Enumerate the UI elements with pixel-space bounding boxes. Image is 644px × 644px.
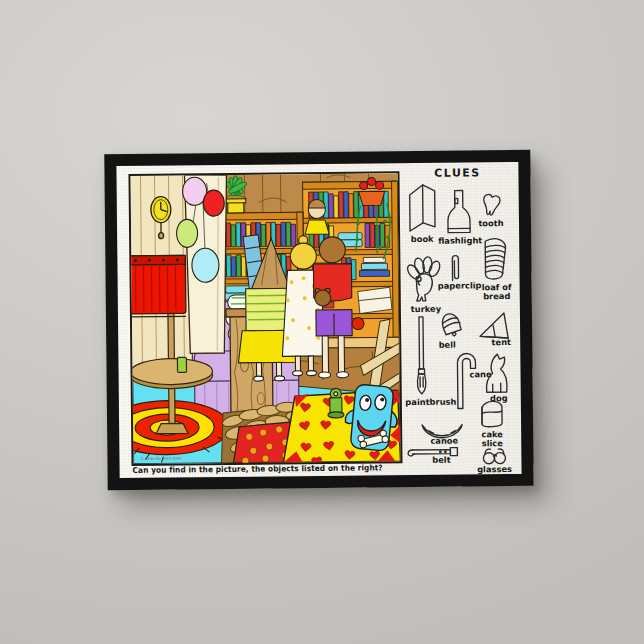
hidden-objects-scene-illustration: © Karen Bo Ward 2004 [130,173,400,464]
clue-label: tooth [476,219,506,228]
artist-copyright: © Karen Bo Ward 2004 [140,456,181,460]
cane-icon [453,348,478,410]
canvas-print: © Karen Bo Ward 2004 Can you find in the… [104,150,533,490]
turkey-icon [406,257,440,303]
puzzle-caption: Can you find in the picture, the objects… [133,463,386,475]
book-icon [406,181,439,235]
clue-label: loaf of bread [477,283,517,301]
paintbrush-icon [413,315,430,397]
dog-icon [479,350,511,394]
clues-title: CLUES [425,166,489,180]
ring-toss-toy [328,388,344,418]
flashlight-icon [446,188,472,234]
clue-label: belt [428,456,454,465]
clue-label: paintbrush [404,398,458,407]
paperclip-icon [448,252,462,282]
cake-slice-icon [478,398,506,430]
red-ball [352,318,364,330]
bell-icon [438,310,464,338]
lamp-shade [130,255,185,317]
tooth-icon [480,192,502,218]
clues-panel: CLUES book flashlight tooth turkey [399,164,520,475]
gray-wall-background: © Karen Bo Ward 2004 Can you find in the… [0,0,644,644]
clue-label: tent [487,338,515,347]
puzzle-scene: © Karen Bo Ward 2004 [128,171,402,466]
bread-icon [478,236,510,282]
clue-label: glasses [475,465,515,474]
